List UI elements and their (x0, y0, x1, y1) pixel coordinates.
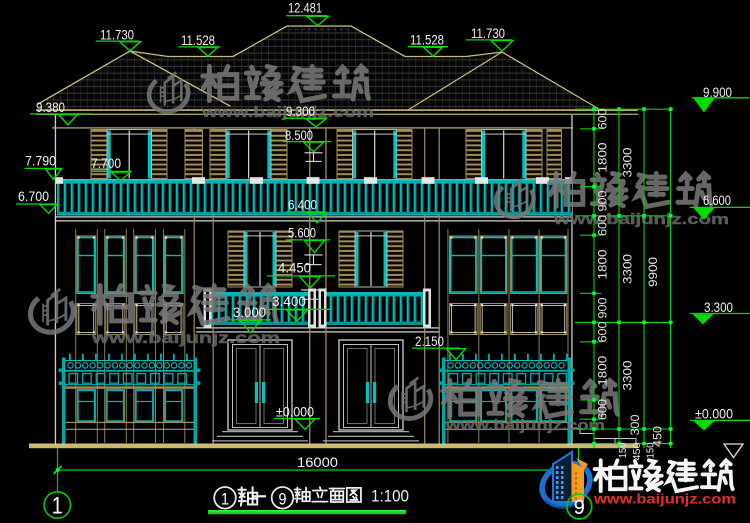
svg-text:www.baijunjz.com: www.baijunjz.com (593, 492, 736, 507)
svg-text:3.300: 3.300 (704, 299, 733, 315)
svg-text:9: 9 (574, 496, 585, 519)
svg-text:1: 1 (52, 493, 63, 520)
svg-text:9: 9 (279, 489, 287, 508)
svg-text:4.450: 4.450 (278, 259, 311, 275)
svg-text:1800: 1800 (598, 356, 610, 386)
svg-text:9900: 9900 (648, 257, 660, 287)
svg-text:±0.000: ±0.000 (695, 406, 733, 422)
svg-text:7.790: 7.790 (25, 152, 56, 168)
svg-text:7.700: 7.700 (91, 155, 121, 171)
svg-text:11.528: 11.528 (410, 31, 444, 47)
svg-text:6.400: 6.400 (288, 197, 317, 213)
svg-text:11.730: 11.730 (100, 26, 134, 42)
svg-text:1: 1 (221, 489, 229, 508)
svg-text:300: 300 (630, 415, 642, 436)
svg-text:3300: 3300 (623, 254, 635, 284)
svg-text:9.300: 9.300 (286, 103, 315, 119)
svg-text:3300: 3300 (623, 361, 635, 391)
svg-text:1:100: 1:100 (371, 487, 409, 506)
svg-text:6.600: 6.600 (703, 192, 731, 208)
svg-text:900: 900 (598, 191, 610, 212)
svg-text:5.600: 5.600 (288, 225, 316, 241)
svg-text:600: 600 (598, 215, 610, 236)
svg-text:2.150: 2.150 (415, 333, 444, 349)
svg-text:600: 600 (598, 399, 610, 420)
svg-text:3300: 3300 (623, 148, 635, 178)
svg-text:3.000: 3.000 (233, 304, 266, 320)
svg-text:12.481: 12.481 (288, 0, 322, 15)
svg-text:1800: 1800 (598, 143, 610, 173)
svg-text:8.500: 8.500 (285, 127, 313, 143)
svg-text:11.730: 11.730 (471, 25, 505, 41)
svg-text:150: 150 (646, 442, 657, 458)
svg-text:16000: 16000 (297, 454, 338, 470)
svg-text:600: 600 (598, 322, 610, 343)
svg-text:450: 450 (632, 442, 643, 460)
svg-text:3.400: 3.400 (272, 293, 306, 309)
svg-text:900: 900 (598, 298, 610, 319)
svg-text:1800: 1800 (598, 250, 610, 280)
svg-text:6.700: 6.700 (18, 188, 49, 204)
svg-text:150: 150 (618, 442, 629, 458)
svg-text:600: 600 (598, 109, 610, 130)
svg-text:9.380: 9.380 (36, 99, 65, 115)
svg-text:±0.000: ±0.000 (276, 404, 314, 420)
svg-text:11.528: 11.528 (181, 32, 215, 48)
